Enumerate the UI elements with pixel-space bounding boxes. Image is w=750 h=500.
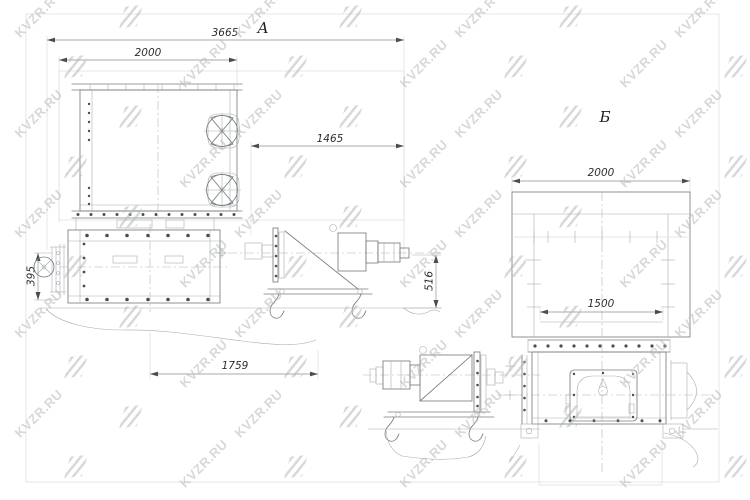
svg-text:3665: 3665 bbox=[212, 27, 239, 39]
dim-2000-a: 2000 bbox=[59, 47, 237, 222]
fan-impeller-bottom bbox=[204, 172, 241, 208]
dim-3665: 3665 bbox=[47, 27, 404, 258]
mixer-body-b bbox=[497, 340, 713, 472]
view-b-label: Б bbox=[598, 108, 610, 126]
envelope-outline bbox=[59, 71, 404, 220]
view-b: Б 2000 bbox=[363, 108, 718, 485]
left-flange-assembly bbox=[34, 244, 66, 295]
svg-text:1759: 1759 bbox=[222, 360, 249, 372]
side-port-arc bbox=[687, 372, 697, 410]
drawing-sheet: А 3665 2000 1465 bbox=[0, 0, 750, 500]
drive-assembly-a bbox=[228, 225, 442, 319]
svg-text:1465: 1465 bbox=[317, 133, 344, 145]
ground-line-a bbox=[40, 308, 442, 345]
ground-line-b bbox=[368, 429, 718, 485]
dim-516: 516 bbox=[402, 255, 441, 308]
view-a-label: А bbox=[256, 19, 268, 37]
svg-text:2000: 2000 bbox=[588, 167, 615, 179]
anchor-hook-icon bbox=[270, 294, 284, 318]
dim-2000-b: 2000 bbox=[512, 167, 690, 194]
view-a: А 3665 2000 1465 bbox=[26, 19, 443, 379]
access-door bbox=[566, 370, 637, 421]
svg-text:1500: 1500 bbox=[588, 298, 615, 310]
body-b-flanges bbox=[505, 355, 697, 462]
technical-drawing: А 3665 2000 1465 bbox=[0, 0, 750, 500]
svg-text:395: 395 bbox=[26, 266, 38, 286]
drive-assembly-b bbox=[363, 347, 540, 442]
door-hinge-icon bbox=[566, 395, 570, 404]
fan-impeller-top bbox=[204, 113, 241, 149]
dim-1759: 1759 bbox=[150, 332, 318, 379]
svg-text:516: 516 bbox=[424, 271, 436, 291]
mixer-upper-box bbox=[72, 84, 242, 218]
dim-1500: 1500 bbox=[540, 298, 663, 320]
mixer-lower-body bbox=[60, 224, 228, 312]
anchor-hook-icon bbox=[352, 294, 366, 318]
svg-text:2000: 2000 bbox=[135, 47, 162, 59]
door-hinge-icon bbox=[566, 406, 570, 415]
